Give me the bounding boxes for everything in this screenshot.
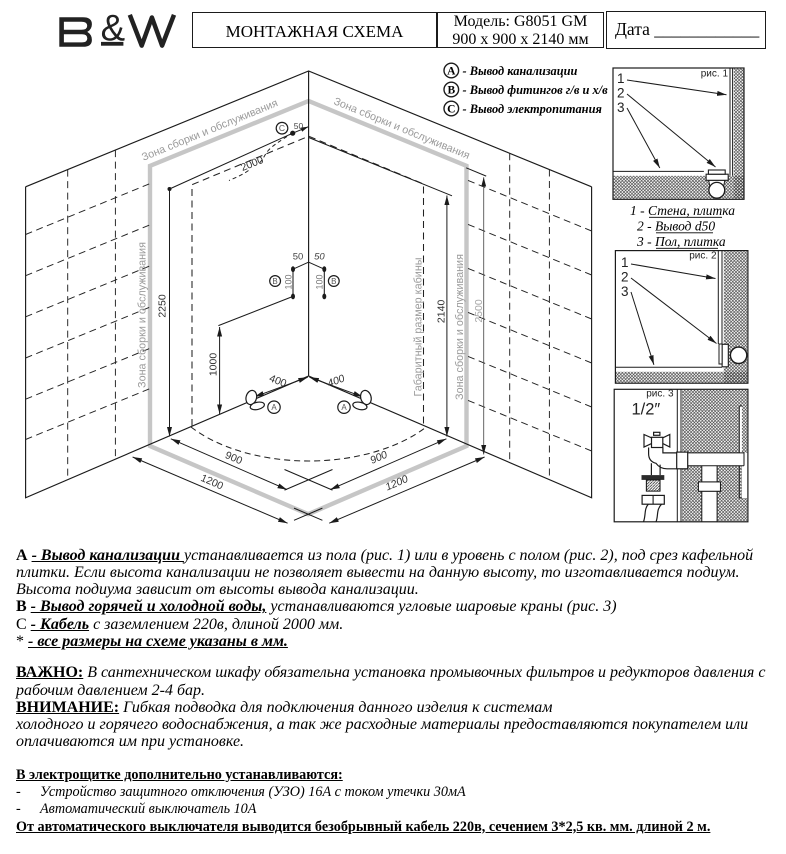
svg-text:900: 900 — [223, 449, 244, 467]
svg-text:2: 2 — [621, 270, 629, 285]
svg-text:рис. 2: рис. 2 — [689, 251, 717, 262]
svg-text:50: 50 — [314, 251, 325, 262]
svg-text:- Вывод канализации: - Вывод канализации — [463, 64, 578, 78]
svg-text:С: С — [447, 104, 455, 116]
svg-text:Зона сборки и обслуживания: Зона сборки и обслуживания — [137, 242, 149, 388]
svg-text:3: 3 — [617, 100, 625, 115]
svg-text:1/2″: 1/2″ — [632, 401, 661, 419]
svg-text:3: 3 — [621, 284, 629, 299]
svg-text:100: 100 — [314, 274, 324, 289]
svg-text:50: 50 — [293, 251, 304, 262]
svg-text:3 - Пол, плитка: 3 - Пол, плитка — [636, 234, 726, 249]
svg-text:1 - Стена, плитка: 1 - Стена, плитка — [630, 203, 735, 218]
svg-text:1000: 1000 — [207, 353, 219, 377]
svg-text:900: 900 — [368, 449, 389, 467]
svg-text:2250: 2250 — [157, 294, 169, 318]
svg-text:рис. 1: рис. 1 — [701, 69, 729, 80]
svg-text:100: 100 — [284, 274, 294, 289]
svg-text:А: А — [447, 66, 456, 78]
svg-text:400: 400 — [326, 372, 347, 390]
svg-text:Зона сборки и обслуживания: Зона сборки и обслуживания — [454, 254, 466, 400]
svg-text:- Вывод электропитания: - Вывод электропитания — [463, 102, 602, 116]
svg-text:2500: 2500 — [473, 299, 485, 323]
svg-text:1: 1 — [617, 71, 625, 86]
svg-text:- Вывод фитингов г/в и х/в: - Вывод фитингов г/в и х/в — [463, 83, 609, 97]
svg-text:1: 1 — [621, 255, 629, 270]
svg-text:рис. 3: рис. 3 — [646, 389, 674, 400]
svg-text:2 - Вывод d50: 2 - Вывод d50 — [637, 219, 715, 234]
svg-text:B: B — [272, 277, 277, 286]
svg-text:Габаритный размер кабины: Габаритный размер кабины — [413, 257, 425, 396]
svg-text:2000: 2000 — [239, 154, 265, 174]
svg-text:Зона сборки и обслуживания: Зона сборки и обслуживания — [140, 97, 280, 164]
svg-text:В: В — [447, 85, 455, 97]
svg-text:A: A — [271, 403, 277, 412]
svg-text:C: C — [279, 123, 285, 133]
svg-text:2140: 2140 — [436, 300, 448, 324]
svg-text:B: B — [331, 277, 336, 286]
svg-text:2: 2 — [617, 86, 625, 101]
svg-text:400: 400 — [267, 372, 288, 390]
svg-text:50: 50 — [294, 121, 304, 131]
svg-text:A: A — [341, 403, 347, 412]
